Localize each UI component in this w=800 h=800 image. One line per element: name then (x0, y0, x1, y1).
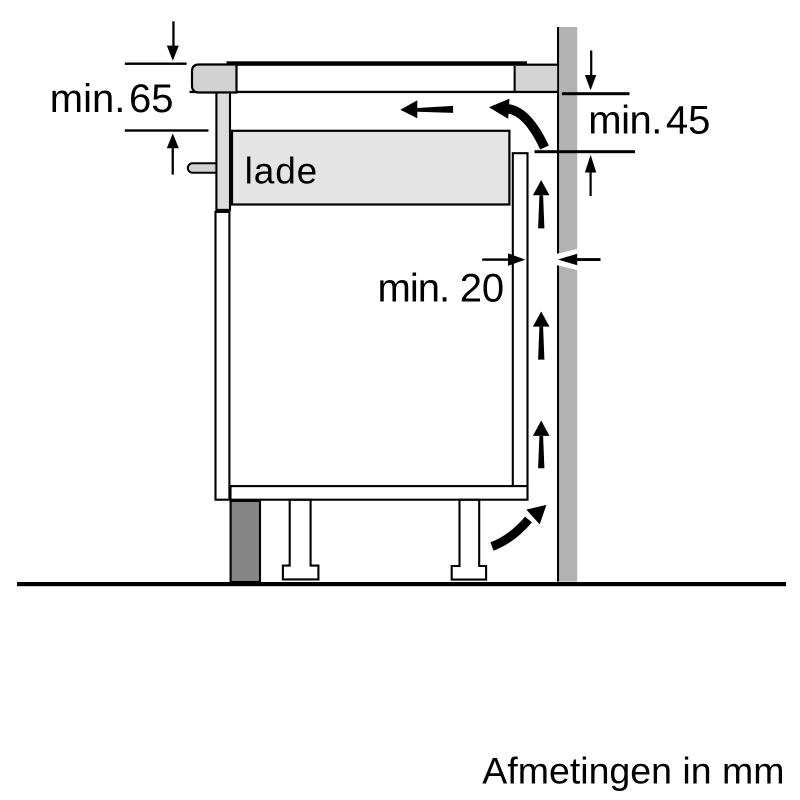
svg-text:lade: lade (245, 150, 319, 191)
svg-text:min.: min. (588, 99, 662, 143)
svg-text:20: 20 (460, 267, 505, 311)
svg-text:45: 45 (666, 99, 711, 143)
svg-text:Afmetingen in mm: Afmetingen in mm (482, 750, 784, 792)
svg-text:min.: min. (378, 267, 450, 311)
svg-text:65: 65 (129, 77, 174, 121)
svg-text:min.: min. (50, 77, 126, 121)
